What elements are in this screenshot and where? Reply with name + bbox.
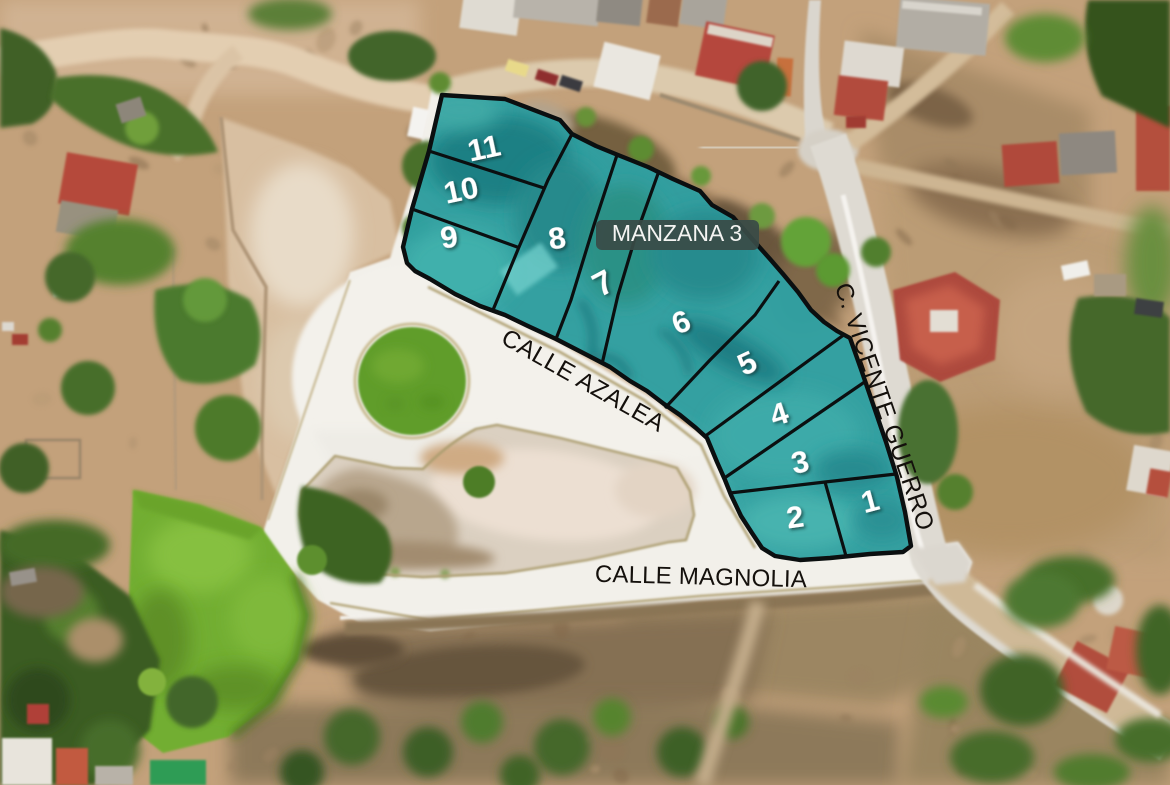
svg-text:10: 10 [440, 169, 481, 210]
svg-text:MANZANA 3: MANZANA 3 [612, 220, 742, 246]
svg-text:CALLE MAGNOLIA: CALLE MAGNOLIA [595, 561, 808, 594]
